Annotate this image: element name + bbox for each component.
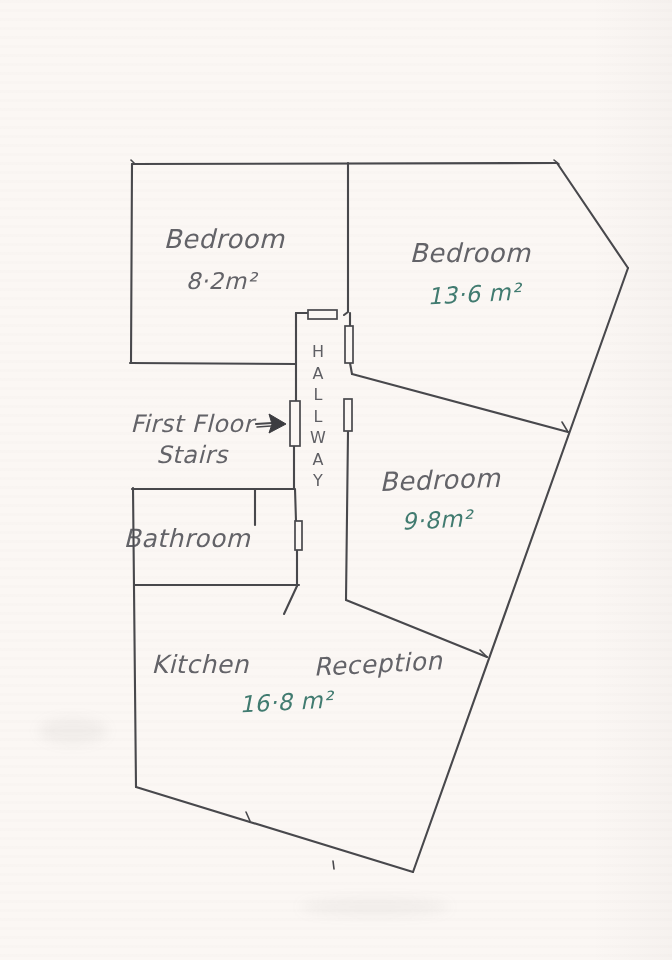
arrow-head [269,414,286,433]
wall-bottom [136,787,413,872]
wall-hall-right-2 [350,363,352,374]
wall-bedroom2-bedroom3-divider [352,374,568,432]
tick-mark [246,812,250,821]
door-bedroom-top-right [345,326,353,363]
arrow-tail [256,423,272,424]
wall-hall-right-3 [346,432,348,600]
wall-bedroom1-right [344,163,348,315]
wall-right [413,268,628,872]
bedroom-top-right-name: Bedroom [409,238,530,268]
first-floor-stairs-label: First Floor Stairs [130,409,253,471]
floor-plan-drawing [0,0,672,960]
stairs-direction-arrow-icon [256,414,286,433]
bathroom-name: Bathroom [124,524,251,553]
kitchen-name: Kitchen [151,650,248,679]
wall-top [132,163,557,164]
wall-hall-left-diagonal [284,586,297,614]
bedroom-top-left-area: 8·2m² [186,268,257,294]
bedroom-mid-right-name: Bedroom [379,463,501,497]
wall-topright-diagonal [557,163,628,268]
door-bedroom-mid-right [344,399,352,431]
wall-bedroom1-bottom [130,363,296,364]
door-bathroom [295,521,302,550]
kitchen-reception-area: 16·8 m² [239,687,334,718]
first-floor-stairs-line1: First Floor [130,409,253,440]
door-stairs [290,401,300,446]
hallway-name: HALLWAY [310,341,326,492]
wall-left-upper [131,164,132,363]
arrow-tail-2 [257,426,271,427]
door-hallway-top [308,310,337,319]
bedroom-top-right-area: 13·6 m² [427,279,522,310]
tick-mark [333,861,334,869]
first-floor-stairs-line2: Stairs [130,440,253,471]
bedroom-mid-right-area: 9·8m² [401,505,473,535]
wall-hall-left-3 [295,489,296,521]
bedroom-top-left-name: Bedroom [163,224,284,254]
floor-plan-page: Bedroom 8·2m² Bedroom 13·6 m² Bedroom 9·… [0,0,672,960]
